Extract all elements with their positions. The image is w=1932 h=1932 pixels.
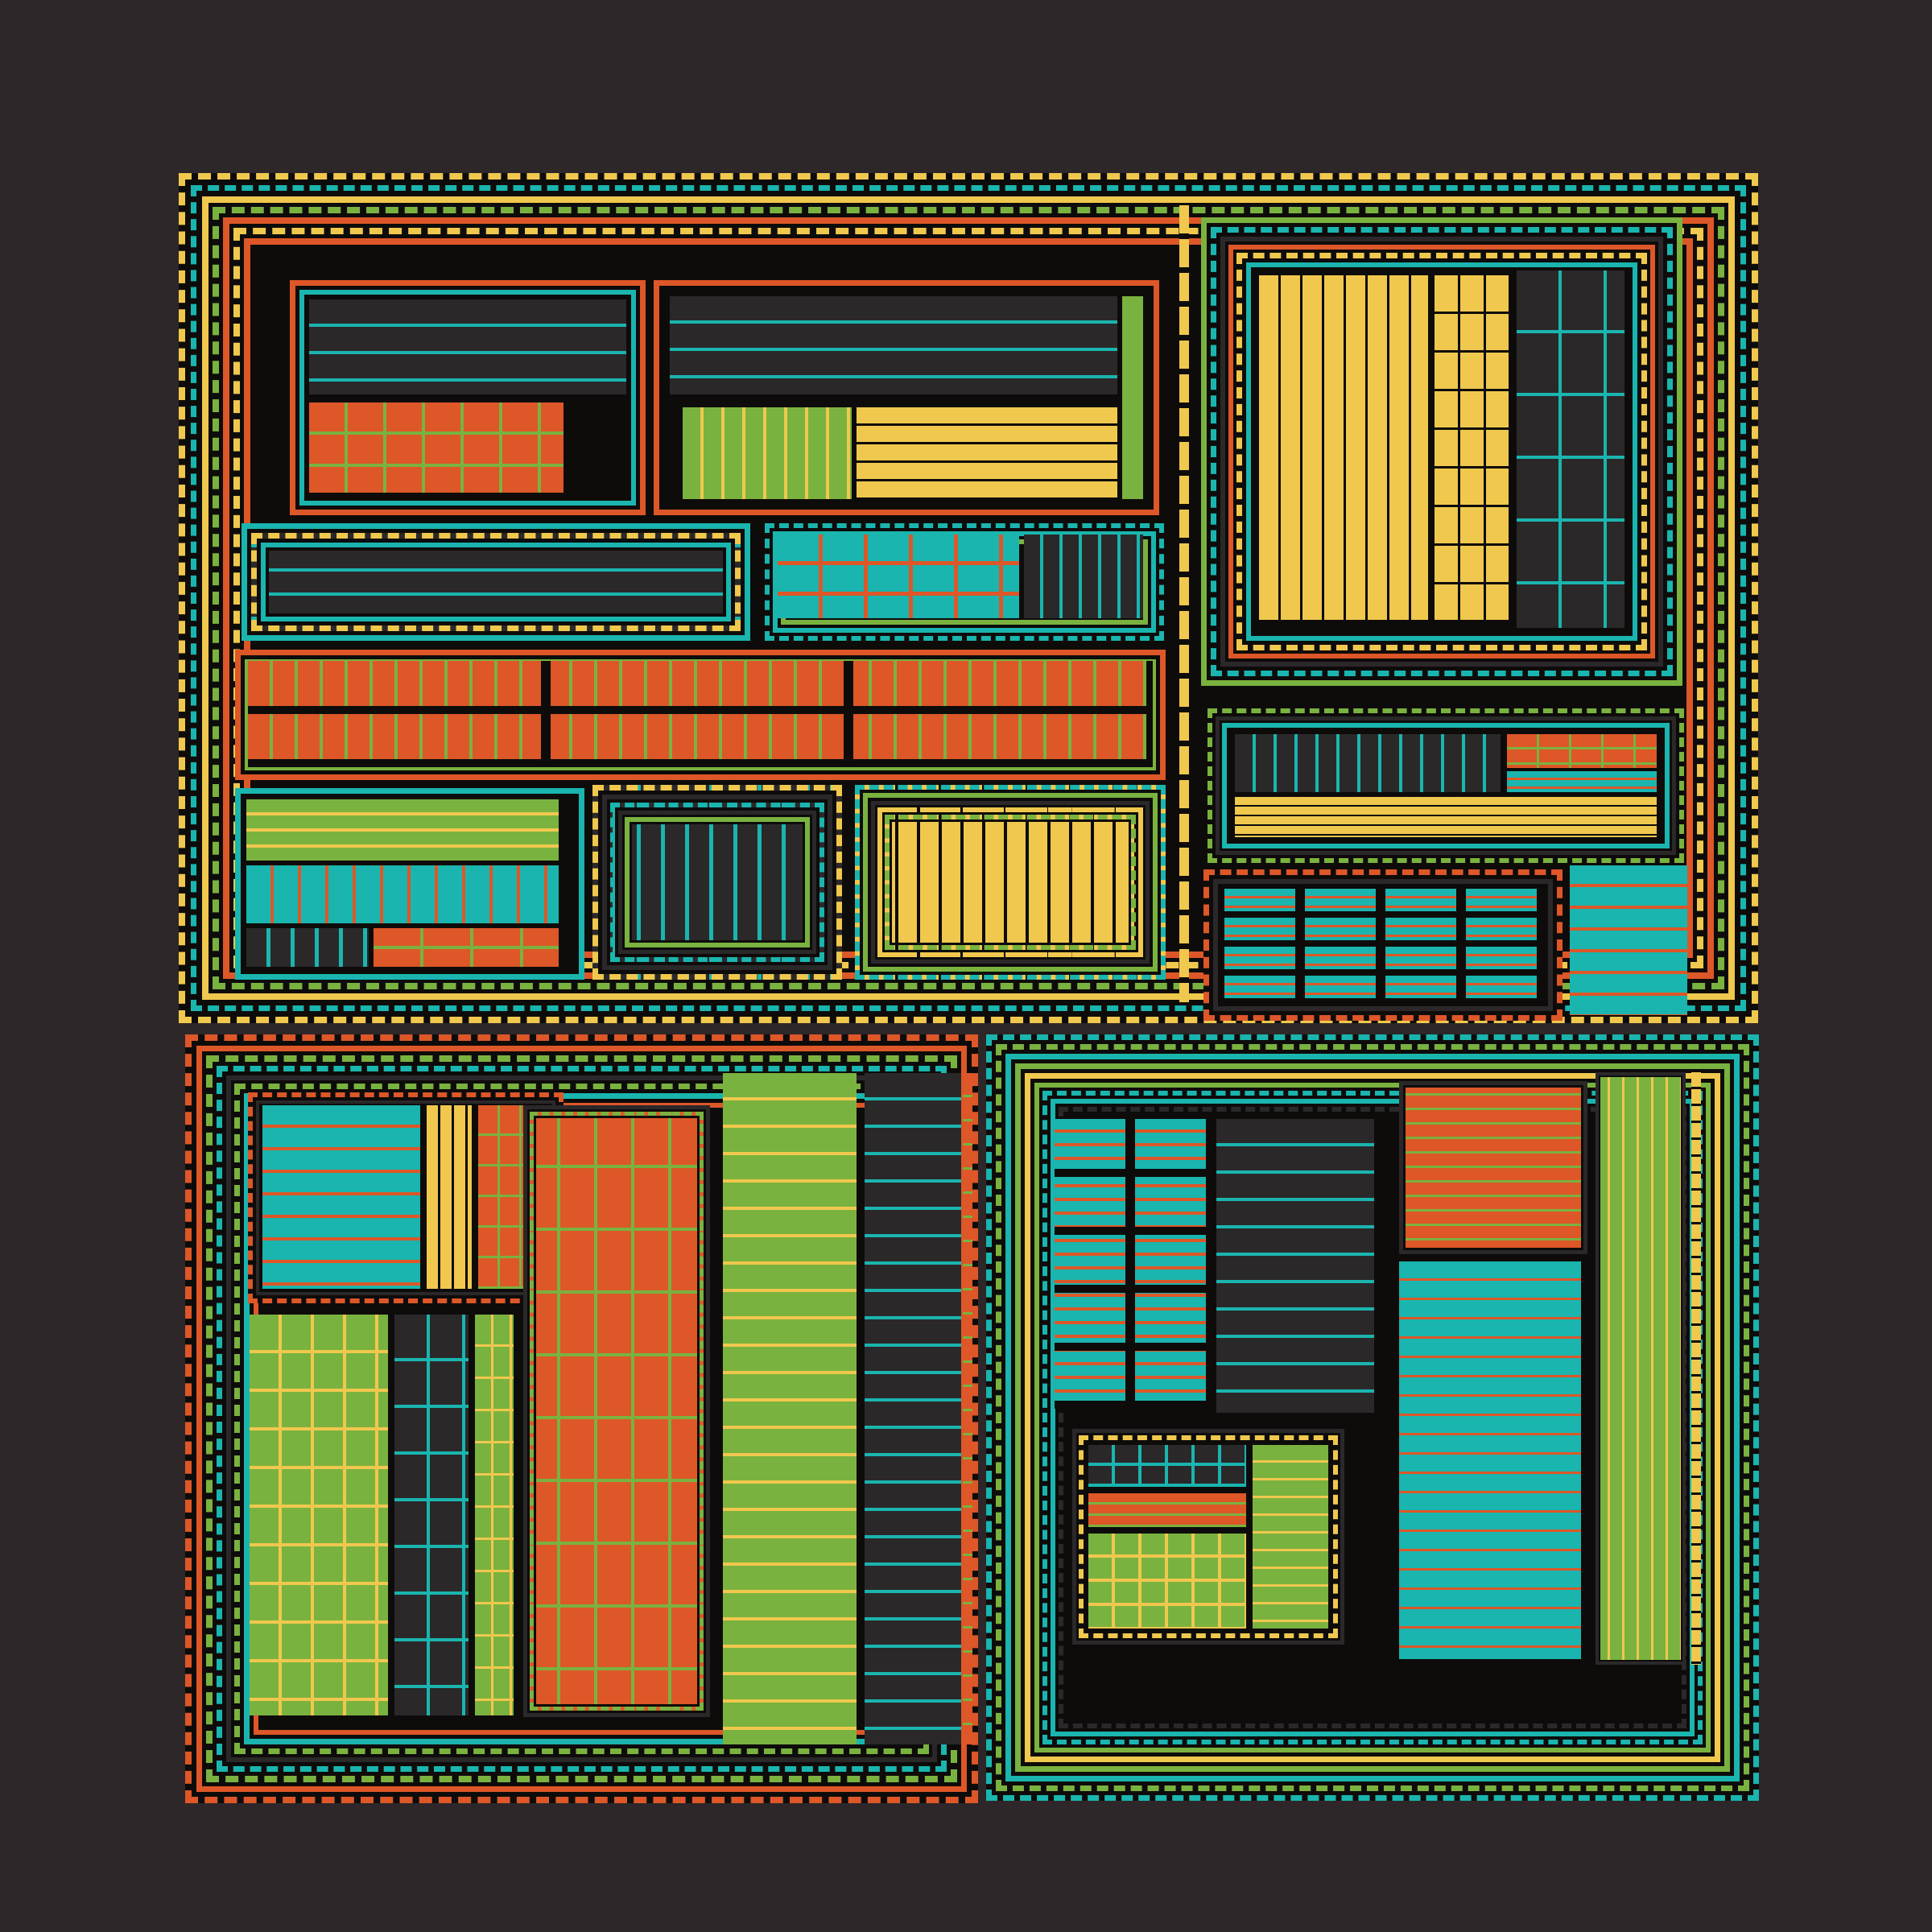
strip-orange [963,1073,972,1744]
box-dark-stripes-row2-ring [266,547,726,617]
col-dark-hstripes [865,1073,961,1744]
bar-teal-hstripes [1507,771,1657,792]
bottom-left-panel [185,1034,978,1803]
box-green-hstripes [1253,1445,1328,1629]
framed-dark-box-ring [615,807,819,957]
framed-dark-box-ring [630,822,805,943]
bar-dark-vstripes [1235,734,1501,792]
col-orange-grid-tall-ring [530,1112,704,1711]
framed-yellow-box-ring [875,805,1146,960]
row-orange-cells [235,650,1166,780]
framed-dark-box [592,785,842,980]
cell-dark-vstripes [1024,535,1143,618]
box-yellow-vstripes [1259,275,1428,620]
framed-dark-box-ring [618,811,816,954]
col-orange-grid-tall [523,1105,710,1717]
box-orange-hstripes-ring [1399,1081,1587,1254]
artwork-canvas [0,0,1932,1932]
col-green-vstripes-ring [1599,1075,1682,1662]
box-orange-hstripes [1088,1493,1246,1527]
framed-yellow-box-ring [882,812,1138,952]
bar-yellow-hstripes [857,407,1117,499]
box-teal-hstripes [262,1105,420,1289]
framed-dark-box-ring [607,799,828,965]
box-green-grid [1088,1534,1246,1629]
panel-bars-topleft [290,280,646,515]
bar-orange-grid [1507,734,1657,768]
teal-cell-grid [1055,1119,1209,1409]
panel-rows-right [1207,708,1684,863]
panel-topright [1201,217,1682,686]
bar-dark-teal-stripes [670,296,1117,394]
framed-yellow-box-ring [868,798,1153,967]
strip-yellow [1691,1072,1701,1665]
orange-cell-grid [248,661,1153,767]
bar-teal-vstripes [246,865,559,923]
col-green-hstripes [723,1073,857,1744]
bar-orange-grid [309,402,563,493]
box-dark-stripes-row2 [242,523,750,641]
bar-dark-teal-stripes [309,299,626,394]
box-teal-hstripes [1399,1261,1581,1659]
framed-yellow-box-ring [860,790,1161,975]
framed-yellow-box [855,785,1166,980]
panel-teal-cells [1203,869,1563,1021]
framed-yellow-box-ring [855,785,1166,980]
framed-dark-box-ring [592,785,842,980]
framed-yellow-box-ring [877,807,1143,957]
framed-yellow-box-ring [871,801,1150,964]
framed-yellow-box-ring [885,815,1136,950]
box-orange-hstripes [1399,1081,1587,1254]
top-frame [179,173,1758,1023]
box-dark-stripes-row2-ring [257,539,735,625]
framed-dark-box-ring [610,803,824,962]
col-dark-grid [394,1315,469,1715]
framed-yellow-box-ring [863,793,1158,972]
bar-green-hstripes [246,799,559,861]
framed-dark-box-ring [622,815,812,950]
box-grid-row2 [765,523,1164,641]
bar-green-vstripes [683,407,852,499]
bar-orange-grid-small [374,928,559,967]
framed-dark-box-ring [598,791,836,974]
divider-strip [1179,205,1189,1002]
teal-cell-grid [1224,889,1542,1001]
bar-dark-vstripes [246,928,369,967]
cell-teal-grid [778,535,1019,618]
col-green-vstripes-ring [1596,1072,1686,1665]
strip-green [1122,296,1143,499]
box-dark-stripes-row2-ring [247,529,745,635]
panel-small-tl [248,1092,563,1303]
col-orange-grid-tall-ring [534,1116,700,1707]
box-orange-hstripes-ring [1403,1085,1583,1250]
col-green-grid [250,1315,388,1715]
bottom-right-panel [986,1034,1759,1801]
col-green-grid-narrow [475,1315,514,1715]
framed-dark-box-ring [625,817,810,947]
box-yellow-grid [1435,275,1509,620]
box-dark-stripes-row2-ring [261,543,731,621]
box-dark-grid [1088,1445,1246,1487]
col-green-vstripes [1596,1072,1686,1665]
box-dark-stripes-row2-ring [251,533,741,631]
stack-left [235,788,584,980]
box-yellow-vstripes [427,1105,472,1289]
panel-small-bottom [1072,1429,1344,1645]
box-dark-tealgrid [1517,270,1624,628]
panel-bars-topright [654,280,1159,515]
box-teal-hstripes [1570,865,1687,1015]
framed-dark-box-ring [602,795,832,970]
col-orange-grid-tall-ring [527,1109,706,1713]
col-orange-grid-tall-ring [523,1105,710,1717]
bar-yellow-hstripes [1235,797,1657,837]
framed-yellow-box-ring [890,819,1131,945]
box-dark-hstripes [1216,1119,1374,1413]
box-dark-stripes-row2-ring [242,523,750,641]
